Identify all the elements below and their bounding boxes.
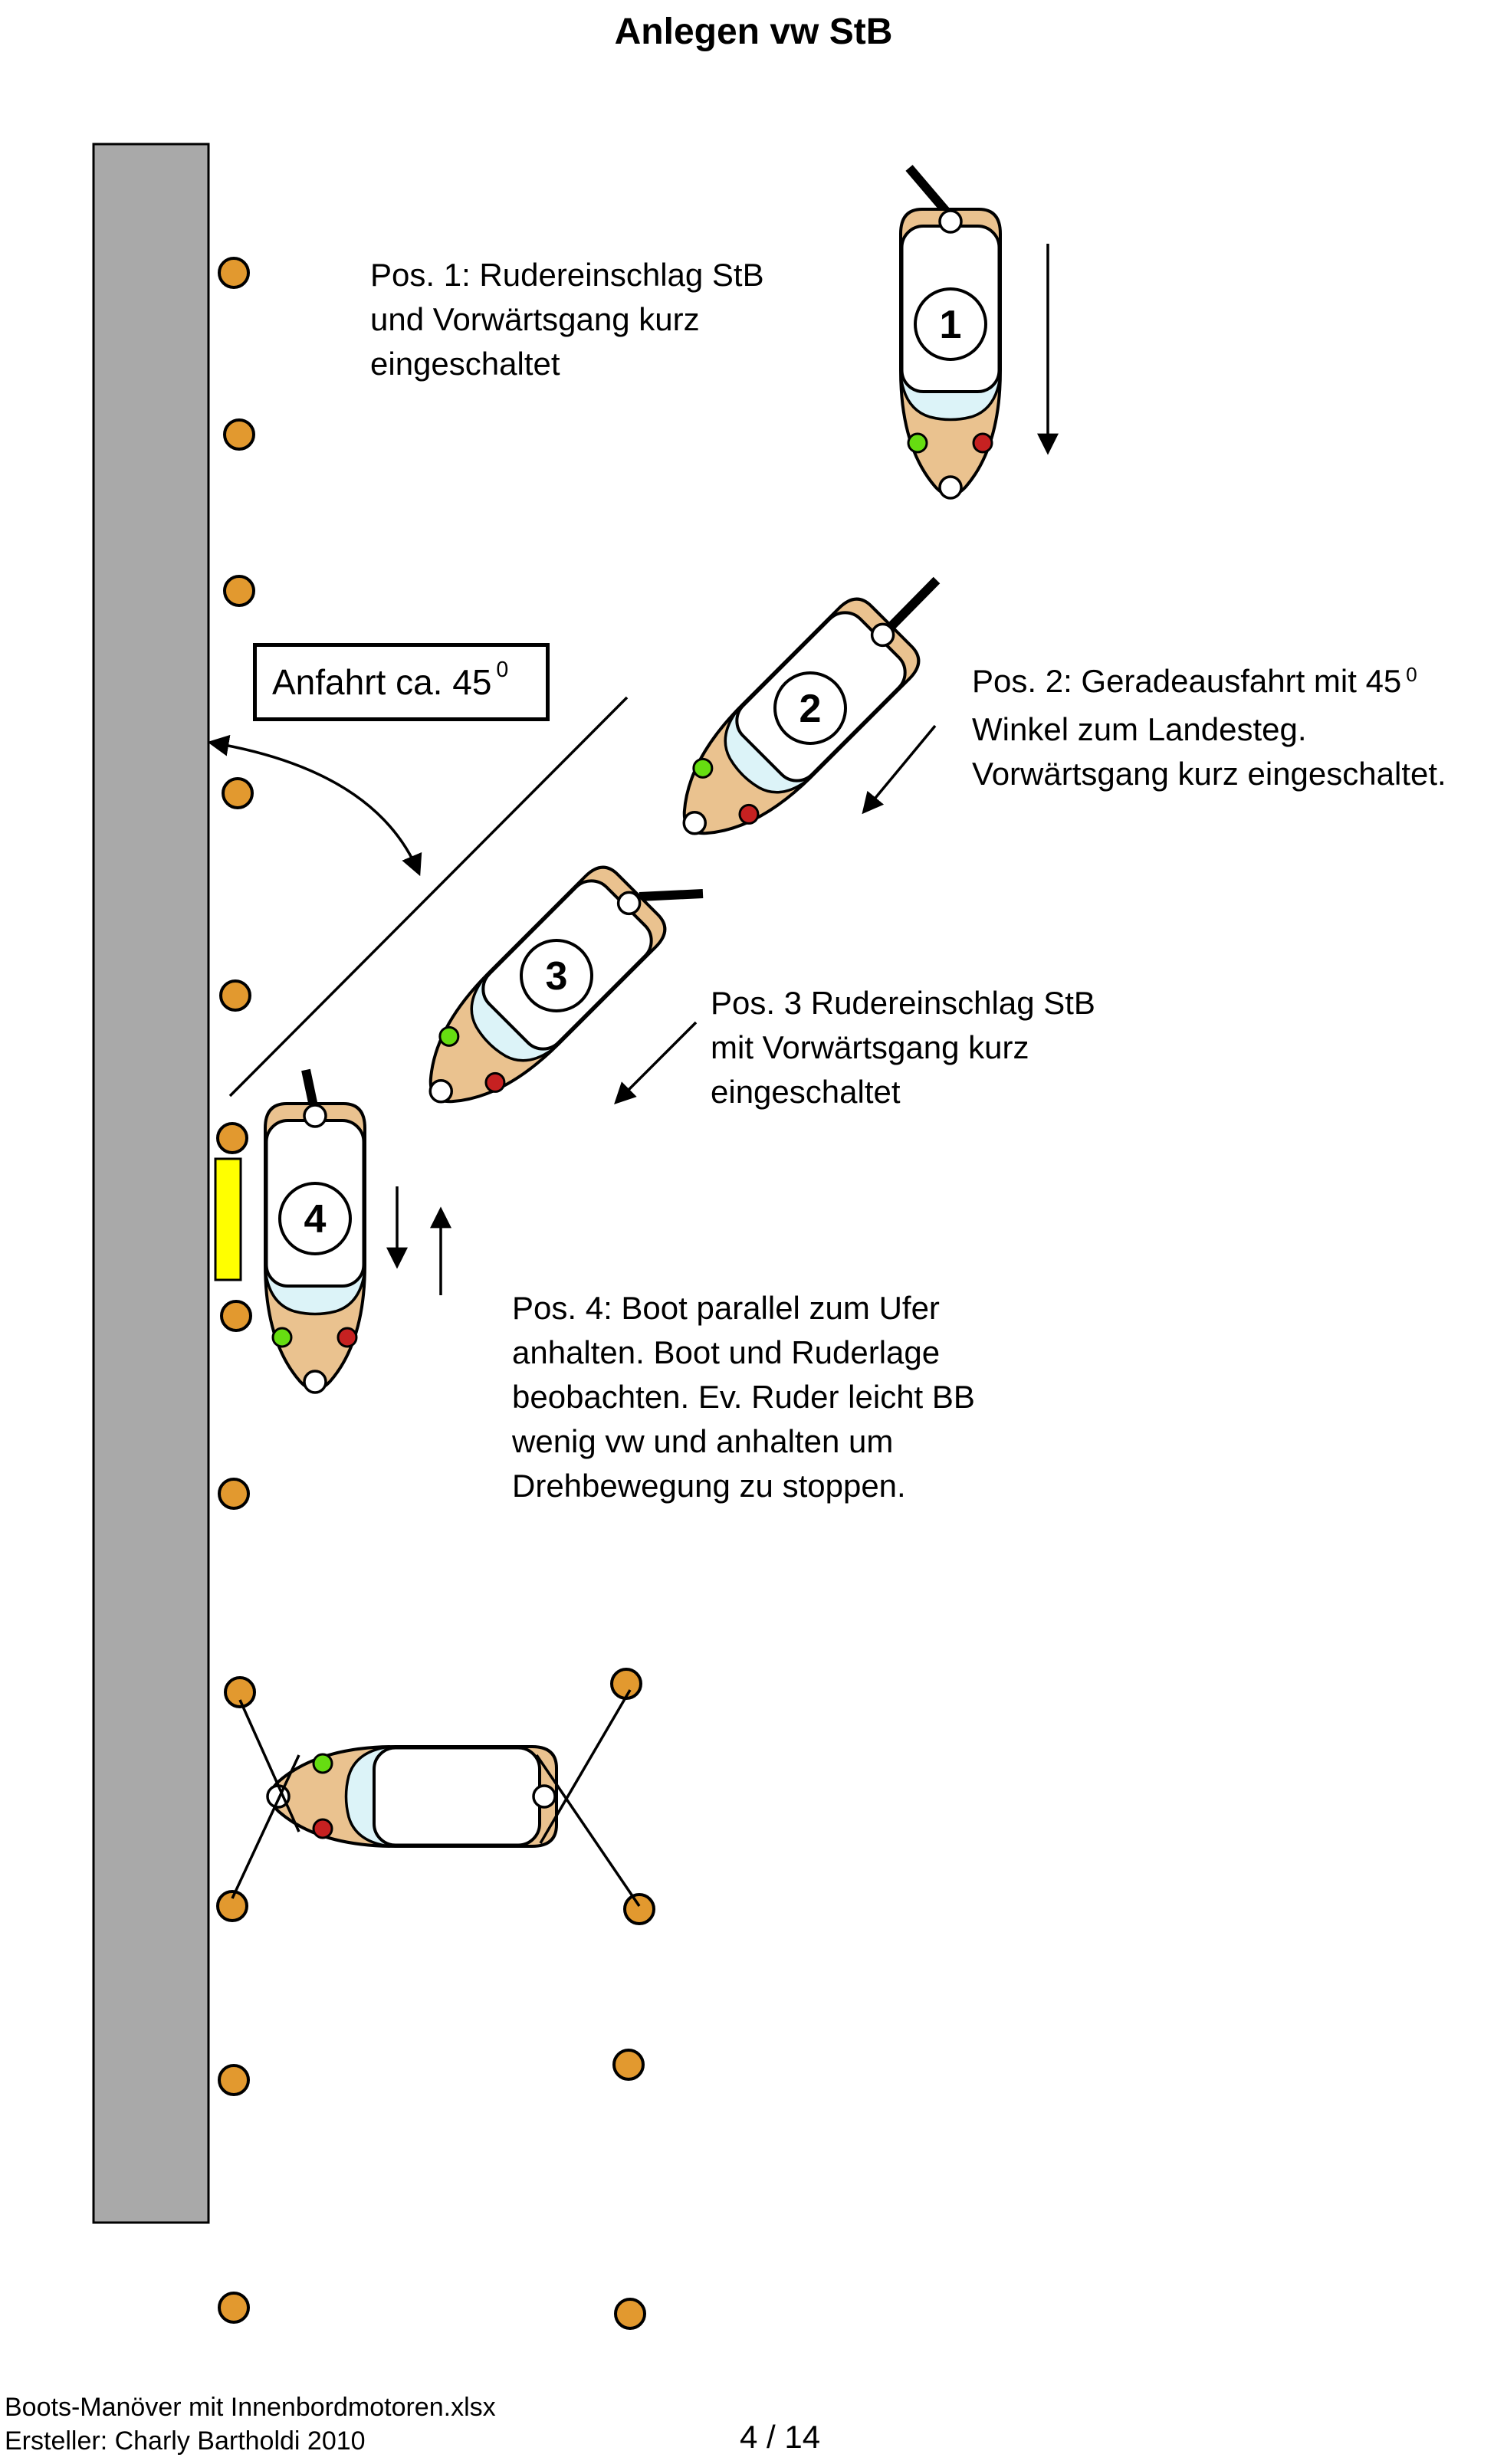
boat-3-number: 3	[546, 954, 568, 999]
boat-1-number: 1	[940, 303, 962, 347]
mooring-post	[616, 2299, 645, 2328]
yellow-fender	[215, 1159, 241, 1280]
pos4-line: anhalten. Boot und Ruderlage	[512, 1330, 975, 1375]
anfahrt-degree-sup: 0	[496, 658, 508, 683]
anfahrt-label: Anfahrt ca. 45	[272, 661, 491, 703]
pos2-annotation: Pos. 2: Geradeausfahrt mit 450 Winkel zu…	[972, 659, 1446, 796]
pos2-line: Vorwärtsgang kurz eingeschaltet.	[972, 752, 1446, 796]
pos3-line: eingeschaltet	[711, 1070, 1095, 1114]
mooring-post	[219, 1479, 248, 1508]
pos1-line: und Vorwärtsgang kurz	[370, 297, 764, 342]
page-number: 4 / 14	[740, 2419, 820, 2456]
mooring-post	[614, 2050, 643, 2079]
rudder-boat2-icon	[888, 580, 937, 630]
mooring-post	[219, 2065, 248, 2095]
direction-arrow-boat2	[865, 726, 935, 811]
pos2-line: Pos. 2: Geradeausfahrt mit 450	[972, 659, 1446, 707]
pos4-line: wenig vw und anhalten um	[512, 1419, 975, 1464]
footer-creator: Ersteller: Charly Bartholdi 2010	[5, 2426, 366, 2456]
boat-2-number: 2	[799, 687, 822, 731]
mooring-post	[625, 1895, 654, 1924]
mooring-post	[223, 779, 252, 808]
mooring-post	[222, 1301, 251, 1330]
mooring-line	[232, 1755, 299, 1898]
pos2-line: Winkel zum Landesteg.	[972, 707, 1446, 752]
page-title: Anlegen vw StB	[0, 11, 1507, 53]
mooring-post	[225, 576, 254, 605]
mooring-post	[219, 258, 248, 287]
boat-4-number: 4	[304, 1197, 327, 1242]
pos4-line: beobachten. Ev. Ruder leicht BB	[512, 1375, 975, 1419]
direction-arrow-boat3	[617, 1022, 696, 1101]
rudder-boat3-icon	[639, 894, 703, 897]
mooring-line	[240, 1700, 299, 1832]
anfahrt-angle-label-box: Anfahrt ca. 450	[253, 643, 550, 721]
pos3-line: Pos. 3 Rudereinschlag StB	[711, 981, 1095, 1025]
pos1-line: eingeschaltet	[370, 342, 764, 386]
rudder-boat1-icon	[909, 168, 949, 215]
boat-moored	[268, 1747, 557, 1846]
pos4-annotation: Pos. 4: Boot parallel zum Ufer anhalten.…	[512, 1286, 975, 1508]
mooring-post	[219, 2293, 248, 2322]
dock	[94, 144, 208, 2223]
pos4-line: Pos. 4: Boot parallel zum Ufer	[512, 1286, 975, 1330]
mooring-post	[218, 1124, 247, 1153]
pos1-annotation: Pos. 1: Rudereinschlag StB und Vorwärtsg…	[370, 253, 764, 386]
footer-filename: Boots-Manöver mit Innenbordmotoren.xlsx	[5, 2393, 496, 2423]
pos1-line: Pos. 1: Rudereinschlag StB	[370, 253, 764, 297]
pos3-annotation: Pos. 3 Rudereinschlag StB mit Vorwärtsga…	[711, 981, 1095, 1114]
mooring-post	[221, 981, 250, 1010]
pos4-line: Drehbewegung zu stoppen.	[512, 1464, 975, 1508]
pos3-line: mit Vorwärtsgang kurz	[711, 1025, 1095, 1070]
mooring-post	[225, 420, 254, 449]
